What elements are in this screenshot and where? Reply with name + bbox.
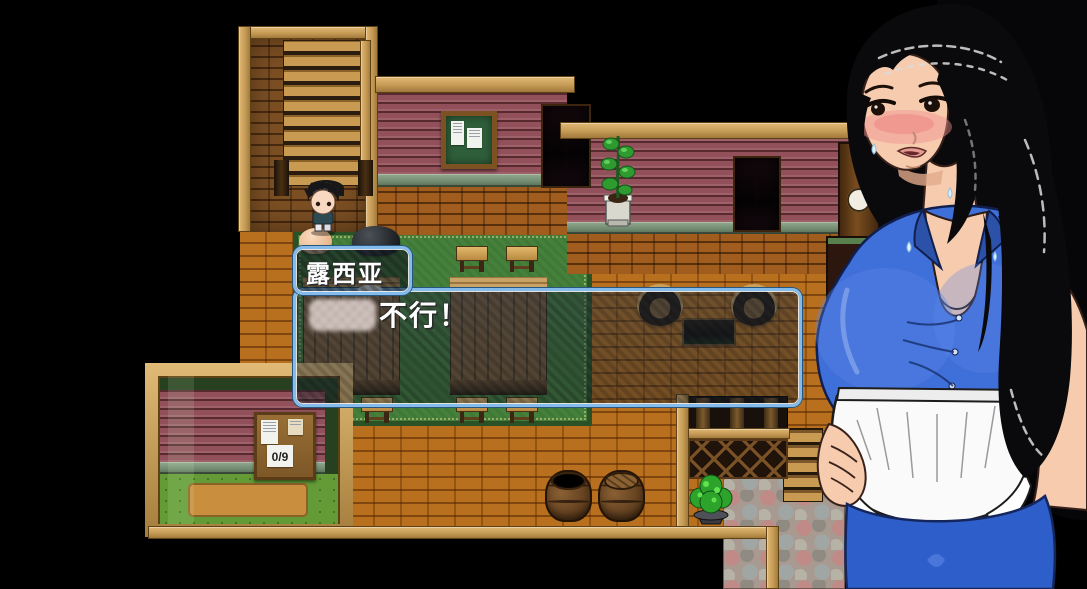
potted-plant bbox=[594, 132, 642, 230]
quest-paper-1 bbox=[261, 420, 278, 444]
barrel-lid bbox=[604, 472, 639, 490]
quest-counter-note: 0/9 bbox=[267, 445, 293, 467]
wall-mid-baseboard bbox=[375, 174, 567, 187]
wall-mid-lower bbox=[375, 187, 567, 235]
stool bbox=[506, 246, 538, 272]
stair-newel-right bbox=[358, 160, 373, 196]
stool bbox=[456, 246, 488, 272]
doorway-mid bbox=[541, 104, 591, 188]
staircase bbox=[283, 40, 365, 186]
counter-beam bbox=[684, 428, 790, 439]
speaker-name-box: 露西亚 bbox=[293, 246, 412, 295]
wall-mid-top-beam bbox=[375, 76, 575, 93]
stairwell-frame-top bbox=[238, 26, 378, 39]
bulletin-board bbox=[441, 111, 497, 169]
doorway-right bbox=[733, 156, 781, 232]
board-paper-2 bbox=[467, 128, 482, 148]
barrel-closed bbox=[598, 470, 645, 522]
portrait-lucia bbox=[787, 0, 1087, 589]
speaker-name-text: 露西亚 bbox=[306, 254, 384, 289]
light-shaft bbox=[168, 376, 194, 524]
stair-newel-left bbox=[274, 160, 289, 196]
quest-board[interactable]: 0/9 bbox=[254, 412, 316, 480]
dialogue-box[interactable]: 不行！ bbox=[293, 288, 802, 407]
game-canvas[interactable]: 0/9 露西亚 不行！ bbox=[0, 0, 1087, 589]
quest-paper-2 bbox=[288, 419, 303, 435]
censor-mosaic bbox=[309, 299, 376, 331]
dirt-patch bbox=[188, 483, 308, 517]
map-bottom-beam bbox=[148, 526, 772, 539]
board-paper-1 bbox=[451, 121, 464, 145]
barrel-open bbox=[545, 470, 592, 522]
shrub-planter bbox=[684, 470, 738, 526]
dialogue-text: 不行！ bbox=[379, 294, 469, 334]
player-sprite bbox=[302, 182, 344, 236]
stairwell-frame-left bbox=[238, 26, 251, 232]
barrel-opening bbox=[551, 472, 586, 490]
quest-counter-text: 0/9 bbox=[272, 450, 289, 464]
map-bottom-beam-corner bbox=[766, 526, 779, 589]
